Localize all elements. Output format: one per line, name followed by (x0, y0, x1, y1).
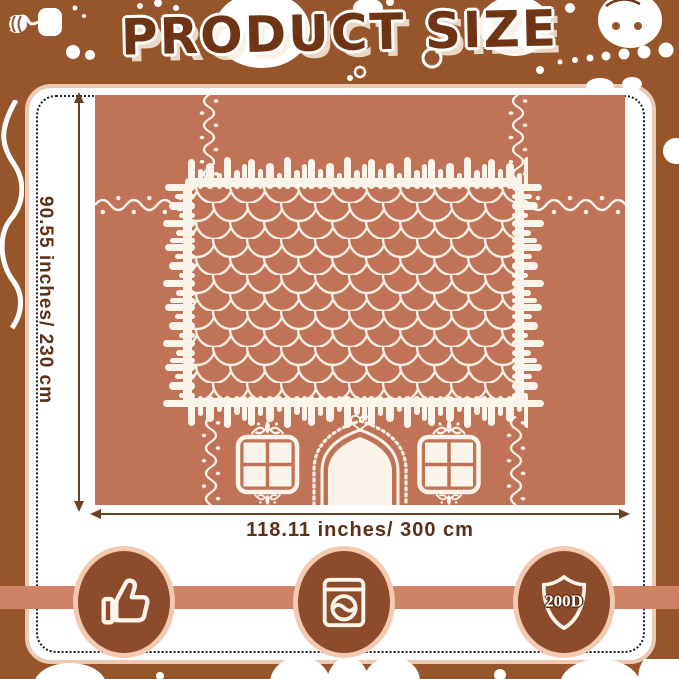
product-diagram (95, 95, 625, 505)
right-edge-blob (660, 136, 679, 166)
feature-durable: 200D (513, 546, 615, 658)
height-dimension-arrow (68, 90, 92, 514)
product-size-infographic: PRODUCT SIZE (0, 0, 679, 679)
gingerbread-roof-pattern (191, 186, 516, 400)
feature-washable (293, 546, 395, 658)
denier-badge: 200D (545, 592, 583, 612)
washing-machine-icon (315, 573, 373, 631)
left-edge-squiggle (0, 100, 24, 340)
thumbs-up-icon (95, 573, 153, 631)
feature-quality (73, 546, 175, 658)
width-label: 118.11 inches/ 300 cm (95, 519, 625, 542)
bottom-decorations (0, 659, 679, 679)
gingerbread-backdrop (95, 95, 625, 505)
height-label: 90.55 inches/ 230 cm (34, 95, 56, 505)
